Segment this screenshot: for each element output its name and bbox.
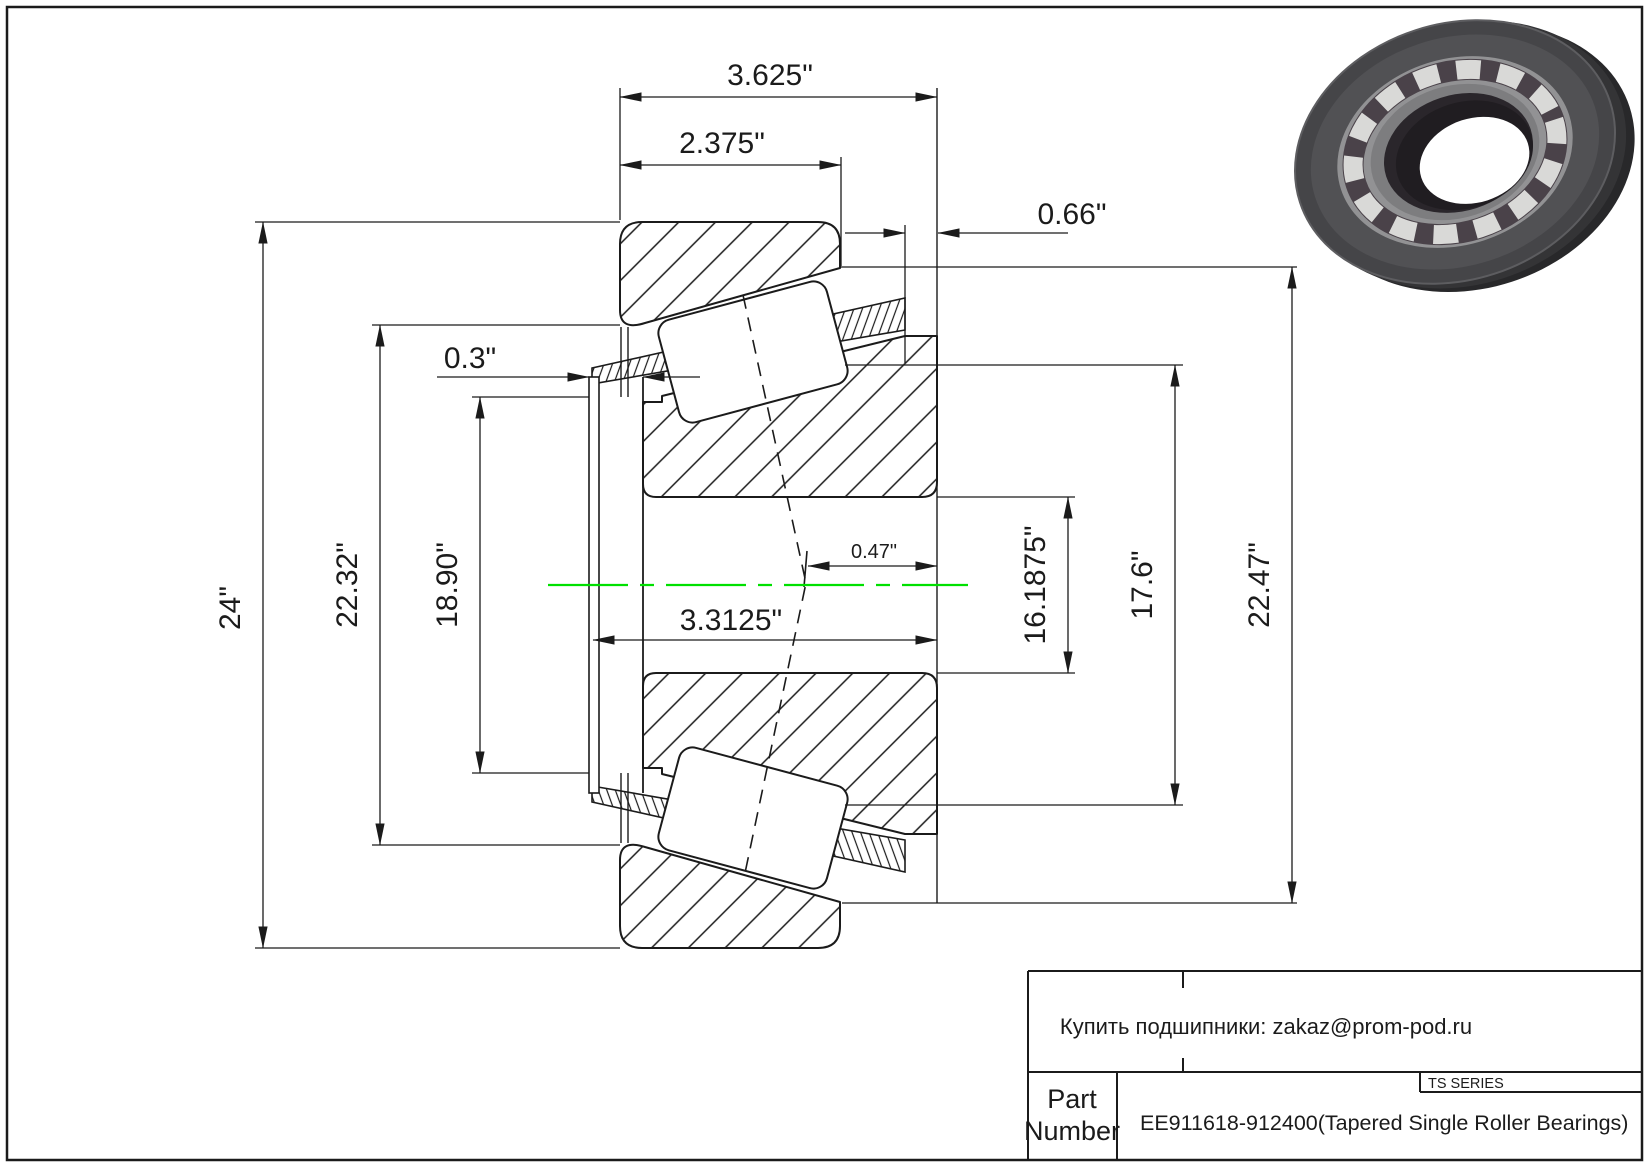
dim-label-front-protrusion: 0.3" bbox=[444, 342, 496, 375]
title-block-series: TS SERIES bbox=[1428, 1076, 1504, 1092]
part-number-label-line2: Number bbox=[1024, 1116, 1120, 1146]
bearing-drawing-svg: 3.625" 2.375" 0.66" 0.3" 0.47" 3.3125" 2… bbox=[0, 0, 1649, 1167]
part-number-label-line1: Part bbox=[1047, 1084, 1097, 1114]
title-block-contact: Купить подшипники: zakaz@prom-pod.ru bbox=[1060, 1014, 1472, 1039]
dim-label-cone-back-overhang: 0.66" bbox=[1037, 198, 1106, 231]
dim-label-cup-od: 22.47" bbox=[1243, 542, 1276, 628]
dim-label-cup-width: 2.375" bbox=[679, 127, 765, 160]
dim-label-flange-diameter: 22.32" bbox=[331, 542, 364, 628]
part-number-value: EE911618-912400(Tapered Single Roller Be… bbox=[1140, 1111, 1628, 1135]
dim-label-effective-center: 0.47" bbox=[851, 541, 897, 563]
dim-label-shoulder-diameter: 18.90" bbox=[431, 542, 464, 628]
apex-tick bbox=[804, 551, 807, 587]
drawing-page: 3.625" 2.375" 0.66" 0.3" 0.47" 3.3125" 2… bbox=[0, 0, 1649, 1167]
dim-label-cone-assembly-width: 3.3125" bbox=[680, 604, 782, 637]
bearing-3d-render bbox=[1260, 0, 1649, 336]
dim-label-outer-diameter: 24" bbox=[214, 586, 247, 630]
dim-label-rib-diameter: 17.6" bbox=[1126, 550, 1159, 619]
dim-label-overall-width: 3.625" bbox=[727, 59, 813, 92]
dim-label-bore-diameter: 16.1875" bbox=[1019, 525, 1052, 644]
